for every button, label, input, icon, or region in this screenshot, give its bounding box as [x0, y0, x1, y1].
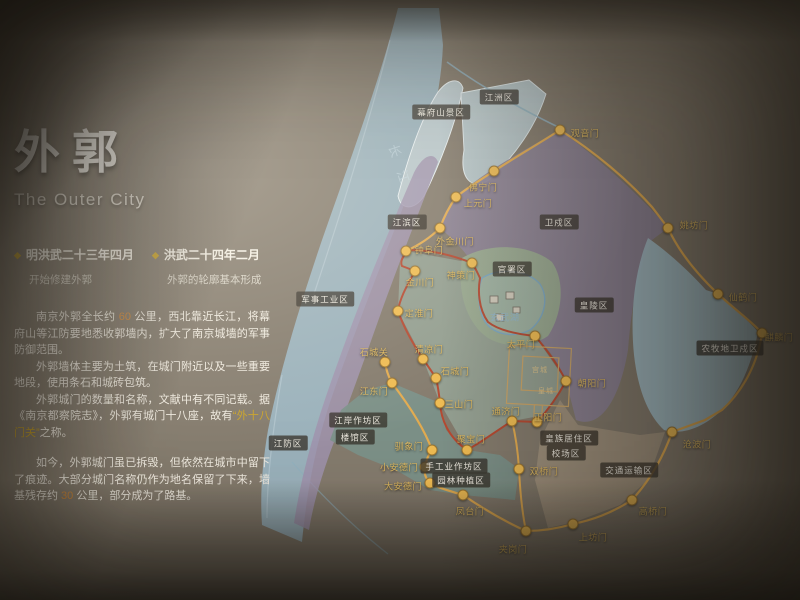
paragraph-1: 南京外郭全长约 60 公里，西北靠近长江，将幕府山等江防要地悉收郭墙内，扩大了南…	[14, 309, 270, 359]
info-panel: 外郭 The Outer City ◆明洪武二十三年四月 开始修建外郭 ◆洪武二…	[14, 116, 270, 505]
milestone-desc: 外郭的轮廓基本形成	[167, 272, 270, 287]
paragraph-3: 外郭城门的数量和名称，文献中有不同记载。据《南京都察院志》，外郭有城门十八座，故…	[14, 392, 270, 442]
paragraph-2: 外郭墙体主要为土筑，在城门附近以及一些重要地段，使用条石和城砖包筑。	[14, 359, 270, 392]
transport-region	[535, 400, 665, 528]
milestones: ◆明洪武二十三年四月 开始修建外郭 ◆洪武二十四年二月 外郭的轮廓基本形成	[14, 246, 270, 287]
highlight-number: 30	[58, 490, 76, 502]
diamond-icon: ◆	[152, 250, 159, 260]
milestone-date: 明洪武二十三年四月	[26, 248, 134, 262]
milestone-2: ◆洪武二十四年二月 外郭的轮廓基本形成	[152, 246, 270, 287]
museum-wall-panel: 观音门佛宁门上元门外金川门姚坊门仙鹤门麒麟门沧波门高桥门上坊门夹岗门凤台门大安德…	[0, 0, 800, 600]
xuanwu-lake	[479, 271, 545, 334]
body-text: 南京外郭全长约 60 公里，西北靠近长江，将幕府山等江防要地悉收郭墙内，扩大了南…	[14, 309, 270, 505]
milestone-1: ◆明洪武二十三年四月 开始修建外郭	[14, 246, 134, 287]
diamond-icon: ◆	[14, 250, 21, 260]
page-subtitle: The Outer City	[14, 190, 270, 210]
farm-garrison-region	[633, 238, 758, 432]
highlight-number: 60	[115, 311, 134, 323]
milestone-date: 洪武二十四年二月	[164, 248, 260, 262]
milestone-desc: 开始修建外郭	[29, 272, 134, 287]
page-title: 外郭	[14, 116, 270, 182]
paragraph-4: 如今，外郭城门虽已拆毁，但依然在城市中留下了痕迹。大部分城门名称仍作为地名保留了…	[14, 455, 270, 505]
